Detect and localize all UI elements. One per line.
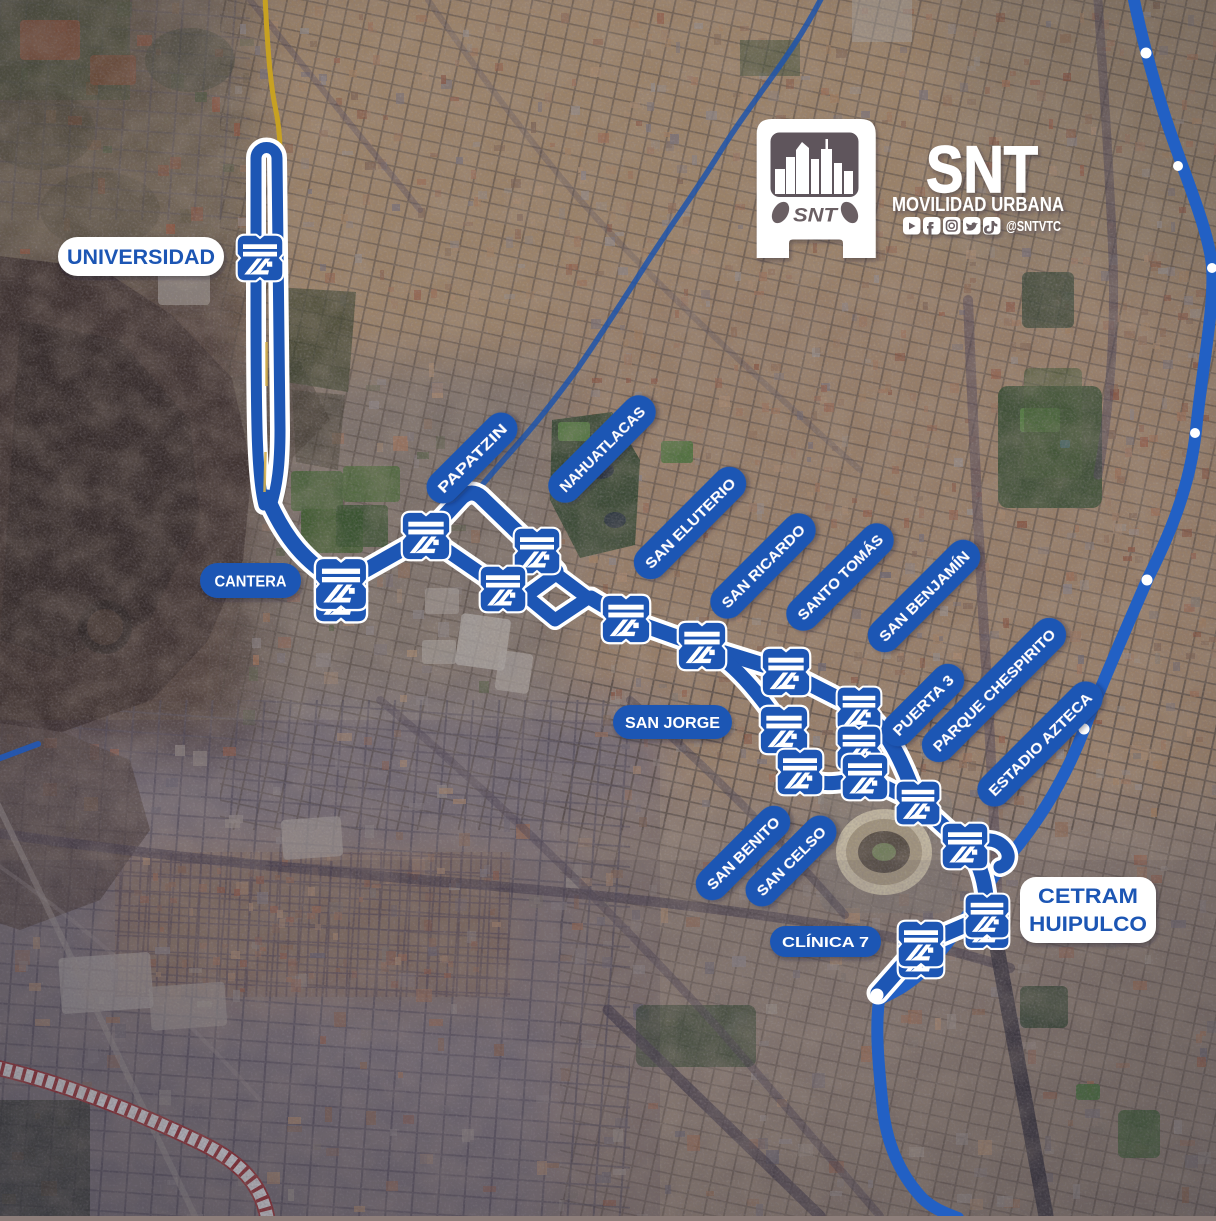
svg-text:UNIVERSIDAD: UNIVERSIDAD [67, 246, 215, 269]
svg-text:CLÍNICA 7: CLÍNICA 7 [782, 934, 869, 951]
svg-text:CANTERA: CANTERA [215, 573, 287, 590]
svg-text:SNT: SNT [793, 206, 839, 227]
svg-text:SAN JORGE: SAN JORGE [625, 715, 720, 732]
svg-text:HUIPULCO: HUIPULCO [1029, 913, 1147, 936]
svg-text:CETRAM: CETRAM [1038, 885, 1138, 908]
svg-text:@SNTVTC: @SNTVTC [1006, 218, 1061, 235]
svg-text:MOVILIDAD URBANA: MOVILIDAD URBANA [892, 194, 1064, 216]
